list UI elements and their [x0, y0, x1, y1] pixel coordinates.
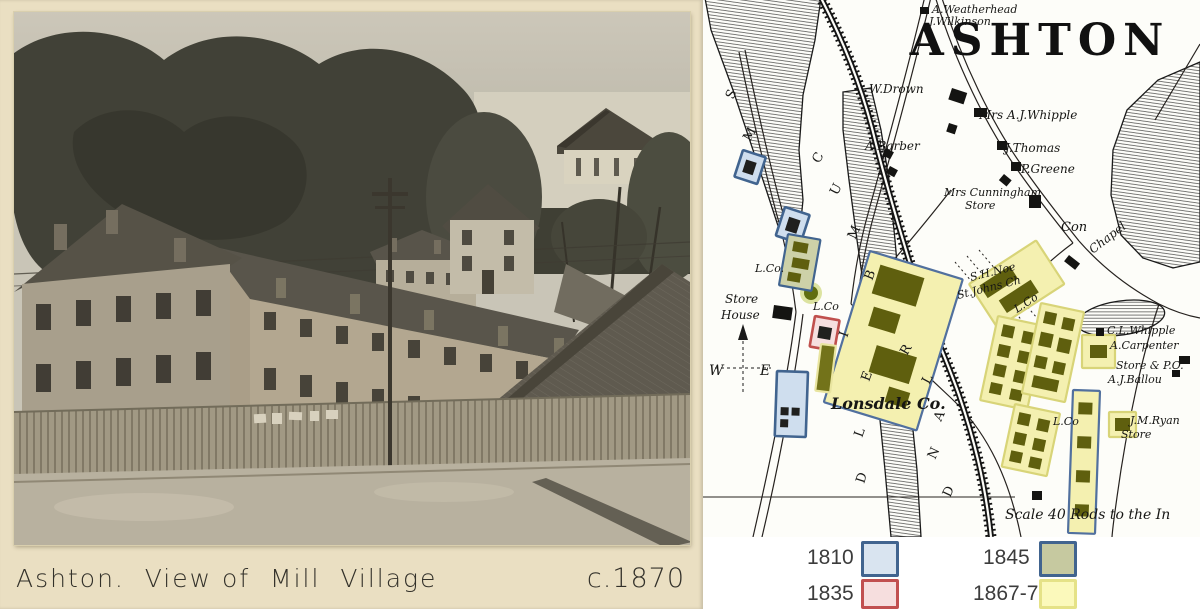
- map-label: L.Co.: [754, 262, 784, 275]
- map-label: L.Co: [812, 300, 839, 313]
- map-label: Mrs A.J.Whipple: [978, 108, 1077, 122]
- legend-label-1845: 1845: [983, 546, 1030, 570]
- map-building: [1032, 438, 1046, 452]
- map-building: [920, 7, 929, 14]
- map-label: Store: [725, 292, 758, 306]
- ashton-map: SMCUMBIERLALNDDA.WeatherheadJ.WilkinsonW…: [703, 0, 1200, 537]
- legend-label-1835: 1835: [807, 582, 854, 606]
- map-label: A.J.Ballou: [1107, 373, 1162, 386]
- map-building: [1078, 402, 1092, 414]
- mill-village-photo: [14, 12, 690, 545]
- legend-swatch-1810: [861, 541, 899, 577]
- map-label: A.Barber: [864, 139, 921, 153]
- photo-album-page: Ashton. View of Mill Village c.1870: [0, 0, 703, 609]
- legend-item-1810: 1810: [807, 546, 854, 570]
- map-building: [1096, 328, 1104, 336]
- map-building: [993, 363, 1007, 377]
- photo-frame: [14, 12, 690, 545]
- map-label: Mrs Cunningham: [943, 186, 1041, 199]
- map-building: [817, 326, 832, 340]
- map-legend: 1810 1845 1835 1867-70: [703, 537, 1200, 609]
- legend-label-1810: 1810: [807, 546, 854, 570]
- map-label: A.Carpenter: [1109, 339, 1179, 352]
- map-label: P.Greene: [1020, 162, 1075, 176]
- photo-caption-row: Ashton. View of Mill Village c.1870: [0, 548, 703, 609]
- map-building: [1077, 436, 1091, 448]
- map-label: Store & P.O.: [1116, 359, 1184, 372]
- map-building: [1061, 317, 1075, 331]
- map-building: [1034, 355, 1048, 369]
- map-building: [1043, 311, 1057, 325]
- map-label: Store: [965, 199, 996, 212]
- ashton-composite-figure: Ashton. View of Mill Village c.1870: [0, 0, 1200, 609]
- map-building: [997, 344, 1011, 358]
- map-building: [780, 407, 788, 415]
- map-building: [1036, 418, 1050, 432]
- sepia-overlay: [14, 12, 690, 545]
- map-label: Store: [1121, 428, 1152, 441]
- map-label: W.Drown: [869, 82, 924, 96]
- map-building: [772, 305, 793, 321]
- map-building: [1032, 491, 1042, 500]
- legend-swatch-1845: [1039, 541, 1077, 577]
- map-label: J.Thomas: [1002, 141, 1060, 155]
- legend-swatch-1835: [861, 579, 899, 609]
- map-building: [791, 408, 799, 416]
- map-building: [1052, 361, 1066, 375]
- legend-swatch-1867-70: [1039, 579, 1077, 609]
- map-building: [1013, 432, 1027, 446]
- map-title: ASHTON: [909, 15, 1171, 66]
- photo-caption: Ashton. View of Mill Village: [16, 564, 437, 593]
- legend-item-1835: 1835: [807, 582, 854, 606]
- map-building: [1001, 324, 1015, 338]
- map-parcel-1810: [775, 371, 808, 437]
- map-label: Con: [1061, 220, 1087, 235]
- map-label: C.L.Whipple: [1107, 324, 1176, 337]
- compass-east: E: [759, 363, 770, 379]
- compass-west: W: [709, 363, 725, 379]
- map-label: Lonsdale Co.: [830, 394, 946, 413]
- map-label: House: [720, 308, 760, 322]
- map-building: [1090, 345, 1107, 358]
- ashton-map-panel: SMCUMBIERLALNDDA.WeatherheadJ.WilkinsonW…: [703, 0, 1200, 609]
- map-building: [1076, 470, 1090, 482]
- map-label: L.Co: [1052, 415, 1079, 428]
- map-building: [1017, 412, 1031, 426]
- map-building: [1011, 162, 1021, 171]
- map-label: Scale 40 Rods to the In: [1005, 507, 1170, 523]
- legend-item-1845: 1845: [983, 546, 1030, 570]
- photo-date: c.1870: [587, 563, 685, 594]
- map-label: J.M.Ryan: [1128, 414, 1180, 427]
- map-building: [780, 419, 788, 427]
